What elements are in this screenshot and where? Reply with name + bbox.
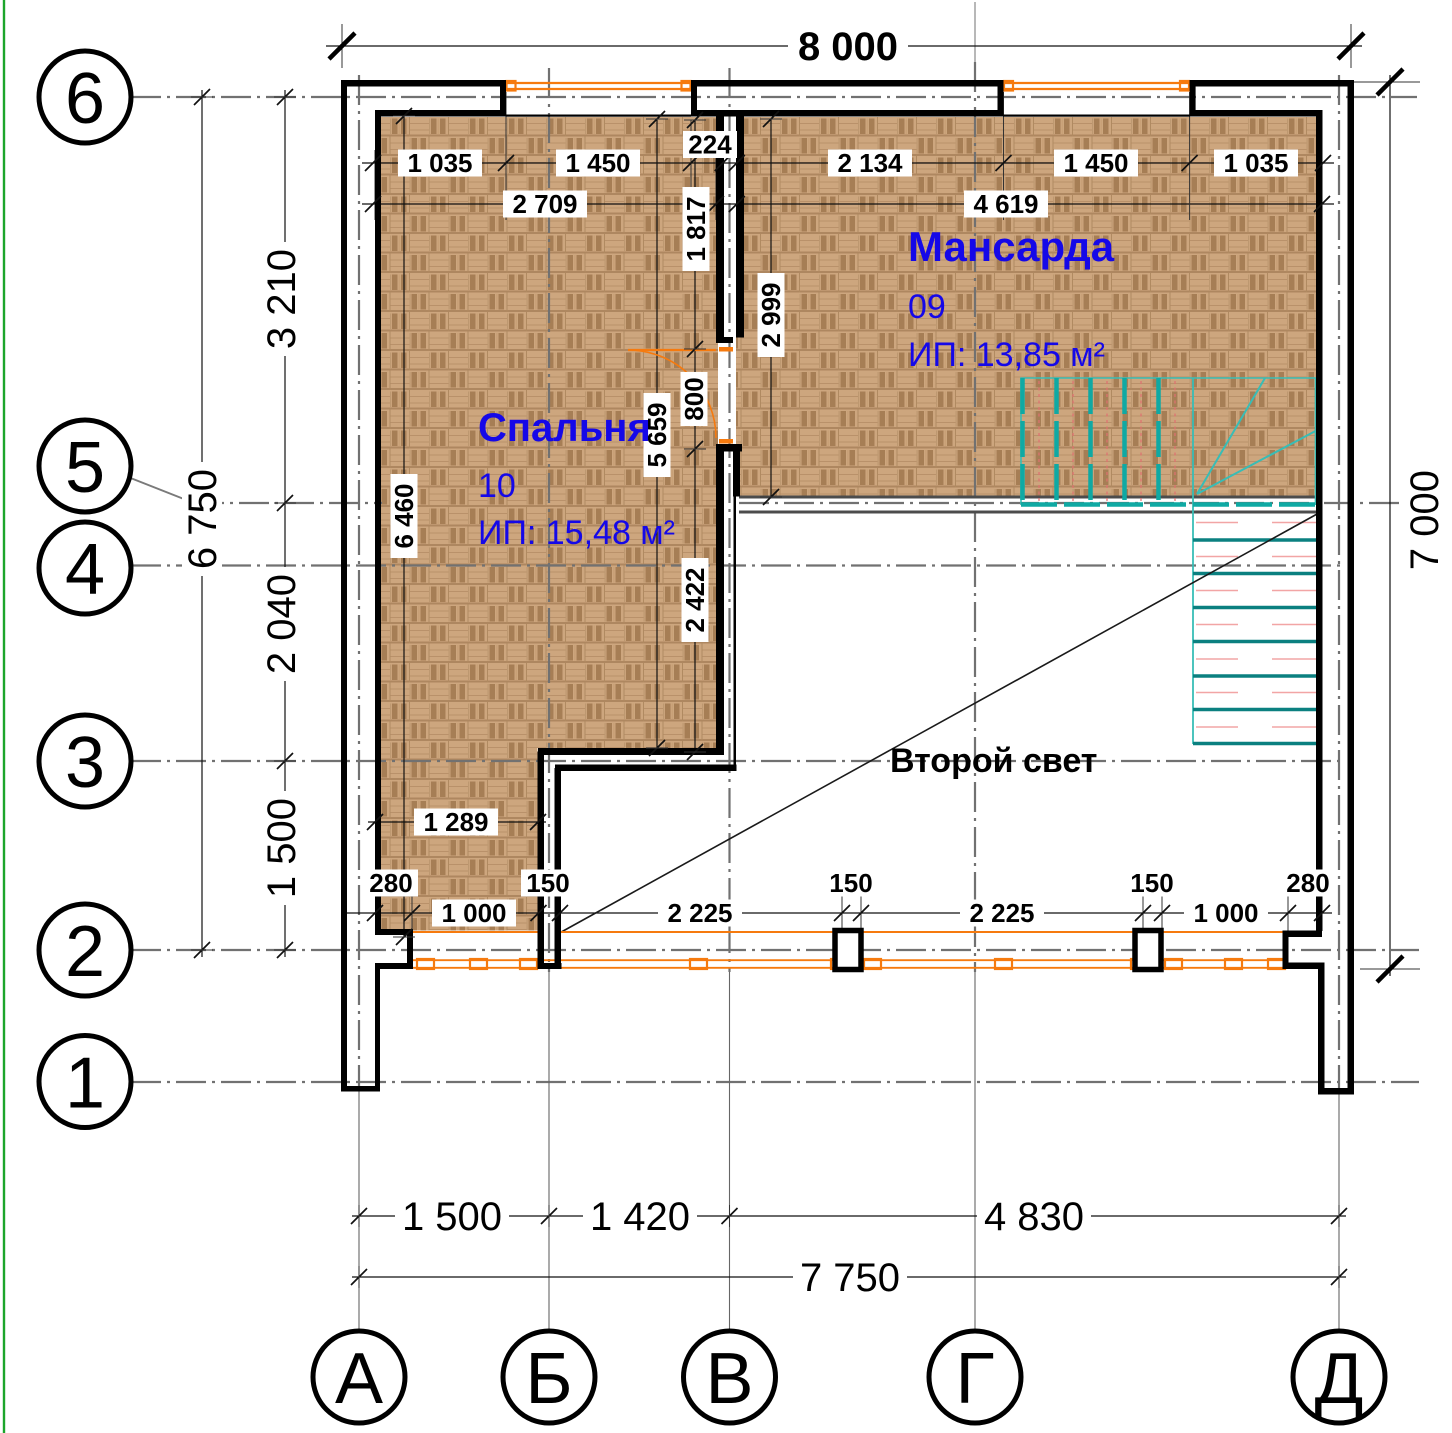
- svg-text:1 450: 1 450: [1063, 148, 1128, 178]
- svg-text:4: 4: [65, 530, 105, 610]
- svg-text:280: 280: [369, 868, 412, 898]
- svg-text:А: А: [335, 1339, 383, 1419]
- svg-text:1 000: 1 000: [441, 898, 506, 928]
- svg-text:150: 150: [1130, 868, 1173, 898]
- svg-text:Г: Г: [956, 1339, 995, 1419]
- svg-text:10: 10: [478, 467, 516, 505]
- svg-text:2 422: 2 422: [680, 567, 710, 632]
- svg-text:1 035: 1 035: [1223, 148, 1288, 178]
- svg-text:3 210: 3 210: [260, 249, 304, 349]
- svg-text:2 040: 2 040: [260, 574, 304, 674]
- svg-text:2 134: 2 134: [837, 148, 903, 178]
- svg-text:4 830: 4 830: [984, 1195, 1084, 1239]
- svg-text:2 225: 2 225: [667, 898, 732, 928]
- svg-text:2 225: 2 225: [969, 898, 1034, 928]
- svg-text:6: 6: [65, 59, 105, 139]
- svg-text:4 619: 4 619: [973, 189, 1038, 219]
- svg-text:3: 3: [65, 723, 105, 803]
- svg-text:2 999: 2 999: [756, 282, 786, 347]
- svg-text:1 420: 1 420: [590, 1195, 690, 1239]
- svg-text:280: 280: [1286, 868, 1329, 898]
- svg-text:1 500: 1 500: [260, 798, 304, 898]
- svg-text:1 450: 1 450: [565, 148, 630, 178]
- svg-text:1 817: 1 817: [681, 196, 711, 261]
- svg-text:5: 5: [65, 428, 105, 508]
- svg-text:ИП: 13,85 м²: ИП: 13,85 м²: [908, 336, 1105, 374]
- svg-text:1 000: 1 000: [1193, 898, 1258, 928]
- svg-text:800: 800: [679, 377, 709, 420]
- svg-text:09: 09: [908, 288, 946, 326]
- svg-text:1: 1: [65, 1044, 105, 1124]
- svg-text:1 500: 1 500: [402, 1195, 502, 1239]
- svg-text:Д: Д: [1315, 1339, 1364, 1419]
- svg-text:7 000: 7 000: [1403, 470, 1447, 570]
- svg-text:Мансарда: Мансарда: [908, 223, 1115, 270]
- svg-text:150: 150: [829, 868, 872, 898]
- svg-text:150: 150: [526, 868, 569, 898]
- svg-text:Б: Б: [525, 1339, 572, 1419]
- svg-text:2: 2: [65, 912, 105, 992]
- svg-text:В: В: [705, 1339, 753, 1419]
- svg-text:Спальня: Спальня: [478, 406, 651, 450]
- svg-text:ИП: 15,48 м²: ИП: 15,48 м²: [478, 514, 675, 552]
- svg-text:1 035: 1 035: [407, 148, 472, 178]
- svg-text:2 709: 2 709: [512, 189, 577, 219]
- svg-text:8 000: 8 000: [798, 25, 898, 69]
- svg-text:6 460: 6 460: [389, 483, 419, 548]
- svg-text:Второй свет: Второй свет: [890, 742, 1097, 780]
- svg-text:6 750: 6 750: [181, 469, 225, 569]
- svg-text:1 289: 1 289: [423, 807, 488, 837]
- svg-text:224: 224: [688, 130, 732, 160]
- svg-text:7 750: 7 750: [800, 1256, 900, 1300]
